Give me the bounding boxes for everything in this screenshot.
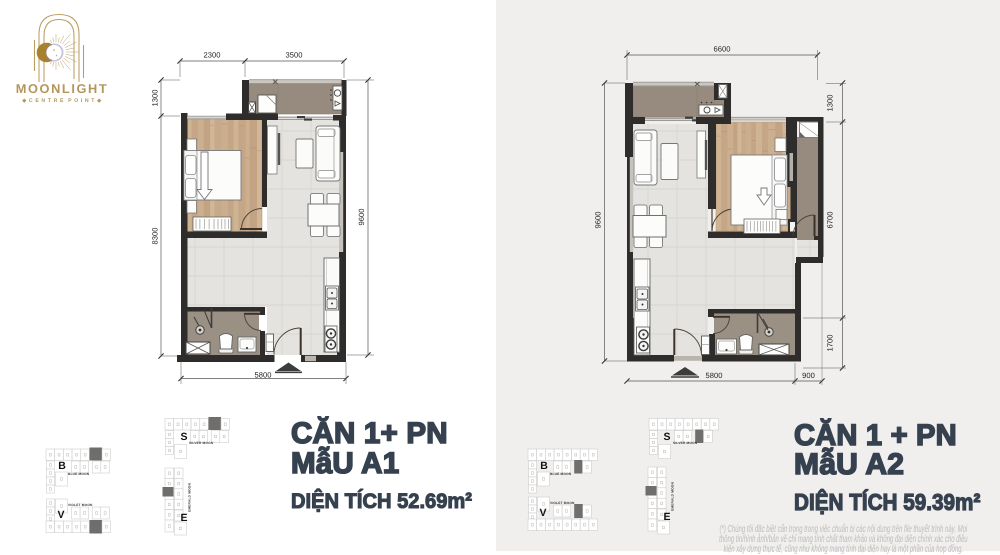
- svg-text:BLUE MOON: BLUE MOON: [68, 472, 90, 476]
- svg-text:2300: 2300: [204, 51, 221, 60]
- svg-text:V: V: [539, 507, 546, 519]
- svg-text:EMERALD MOON: EMERALD MOON: [188, 483, 192, 512]
- svg-text:EMERALD MOON: EMERALD MOON: [671, 482, 675, 511]
- svg-text:3500: 3500: [286, 51, 303, 60]
- svg-text:E: E: [180, 512, 187, 524]
- svg-text:6700: 6700: [826, 212, 835, 229]
- svg-text:S: S: [663, 431, 670, 443]
- svg-text:1300: 1300: [826, 95, 835, 112]
- svg-text:9600: 9600: [594, 212, 603, 229]
- svg-text:5800: 5800: [706, 371, 723, 380]
- svg-text:SILVER MOON: SILVER MOON: [673, 441, 698, 445]
- svg-text:V: V: [57, 509, 64, 521]
- svg-text:E: E: [663, 511, 670, 523]
- svg-text:1700: 1700: [826, 335, 835, 352]
- svg-text:1300: 1300: [151, 90, 160, 107]
- svg-text:BLUE MOON: BLUE MOON: [550, 472, 572, 476]
- svg-text:SILVER MOON: SILVER MOON: [189, 441, 214, 445]
- svg-text:B: B: [58, 460, 66, 472]
- svg-text:8300: 8300: [151, 228, 160, 245]
- svg-text:900: 900: [802, 371, 815, 380]
- svg-text:◆ C E N T R E P O I N T ◆: ◆ C E N T R E P O I N T ◆: [21, 98, 102, 104]
- svg-text:5800: 5800: [255, 371, 272, 380]
- svg-text:B: B: [540, 460, 548, 472]
- svg-text:MOONLIGHT: MOONLIGHT: [16, 81, 109, 96]
- svg-text:S: S: [180, 431, 187, 443]
- svg-text:6600: 6600: [714, 45, 731, 54]
- svg-text:VIOLET MOON: VIOLET MOON: [68, 503, 93, 507]
- svg-text:9600: 9600: [357, 209, 366, 226]
- svg-text:VIOLET MOON: VIOLET MOON: [550, 501, 575, 505]
